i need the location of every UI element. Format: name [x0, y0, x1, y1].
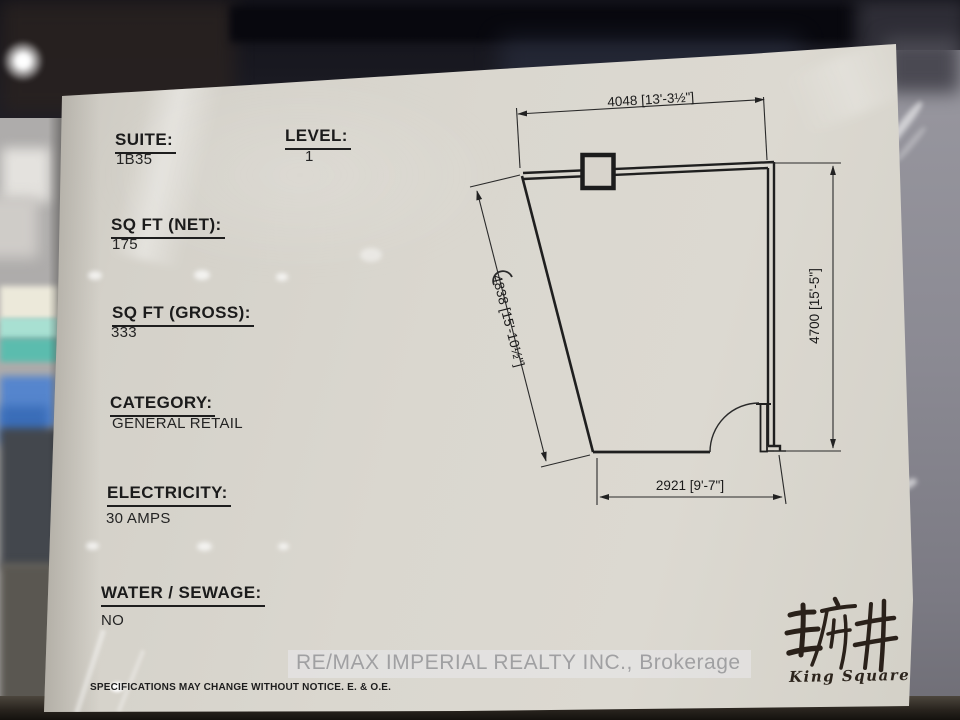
- unit-walls: [522, 162, 786, 452]
- entry-door-swing-arc: [710, 403, 759, 452]
- reflection-light-blob: [0, 196, 38, 258]
- extension-line: [541, 455, 590, 467]
- reflection-light-blob: [2, 148, 50, 202]
- ceiling-light-glare: [2, 40, 44, 82]
- dimension-label-left: 4838 [15'-10½"]: [489, 273, 527, 368]
- extension-line: [470, 175, 520, 187]
- king-square-chinese-calligraphy: [782, 594, 900, 674]
- entry-door: [710, 403, 771, 452]
- dimension-lines: [470, 97, 841, 505]
- dimension-label-bottom: 2921 [9'-7"]: [656, 478, 724, 493]
- column-marker: [583, 155, 614, 188]
- dimension-label-top: 4048 [13'-3½"]: [607, 89, 695, 109]
- entry-door-leaf: [761, 404, 768, 452]
- brokerage-watermark: RE/MAX IMPERIAL REALTY INC., Brokerage: [288, 650, 751, 678]
- extension-line: [517, 108, 521, 168]
- spec-sheet-paper: SUITE: 1B35 LEVEL: 1 SQ FT (NET): 175 SQ…: [0, 0, 960, 720]
- photo-scene: SUITE: 1B35 LEVEL: 1 SQ FT (NET): 175 SQ…: [0, 0, 960, 720]
- extension-line: [764, 97, 768, 160]
- dimension-label-right: 4700 [15'-5"]: [807, 268, 822, 344]
- king-square-script-text: King Square: [789, 666, 911, 686]
- ceiling-beam: [230, 6, 870, 42]
- disclaimer-text: SPECIFICATIONS MAY CHANGE WITHOUT NOTICE…: [90, 682, 391, 693]
